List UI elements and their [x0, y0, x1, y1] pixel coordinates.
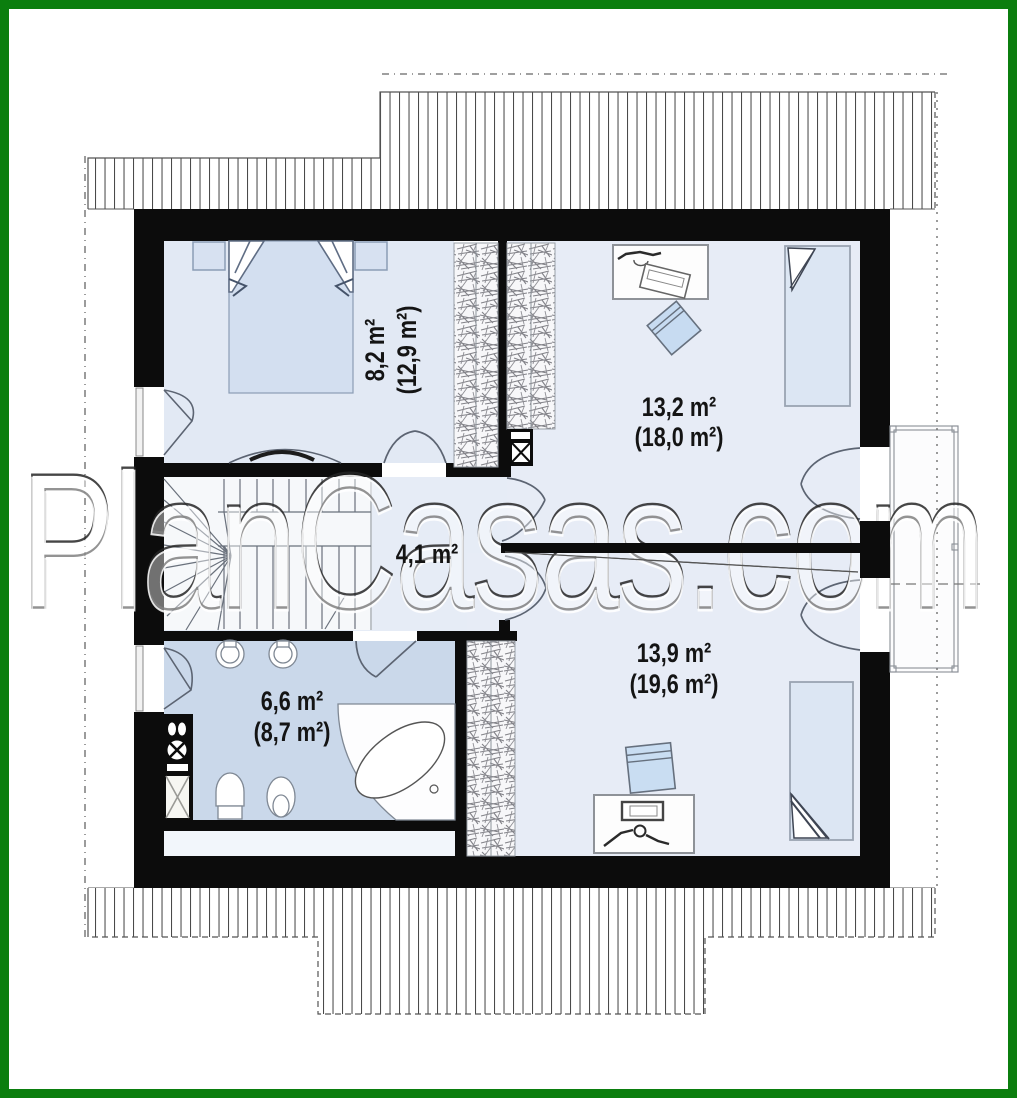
- svg-text:(8,7 m²): (8,7 m²): [254, 718, 331, 748]
- svg-text:(19,6 m²): (19,6 m²): [630, 670, 719, 700]
- svg-text:8,2 m²: 8,2 m²: [361, 319, 391, 381]
- svg-text:6,6 m²: 6,6 m²: [261, 687, 323, 717]
- svg-text:(12,9 m²): (12,9 m²): [393, 306, 423, 395]
- svg-text:(18,0 m²): (18,0 m²): [635, 423, 724, 453]
- svg-text:13,9 m²: 13,9 m²: [637, 639, 711, 669]
- svg-text:13,2 m²: 13,2 m²: [642, 393, 716, 423]
- svg-text:4,1 m²: 4,1 m²: [396, 540, 458, 570]
